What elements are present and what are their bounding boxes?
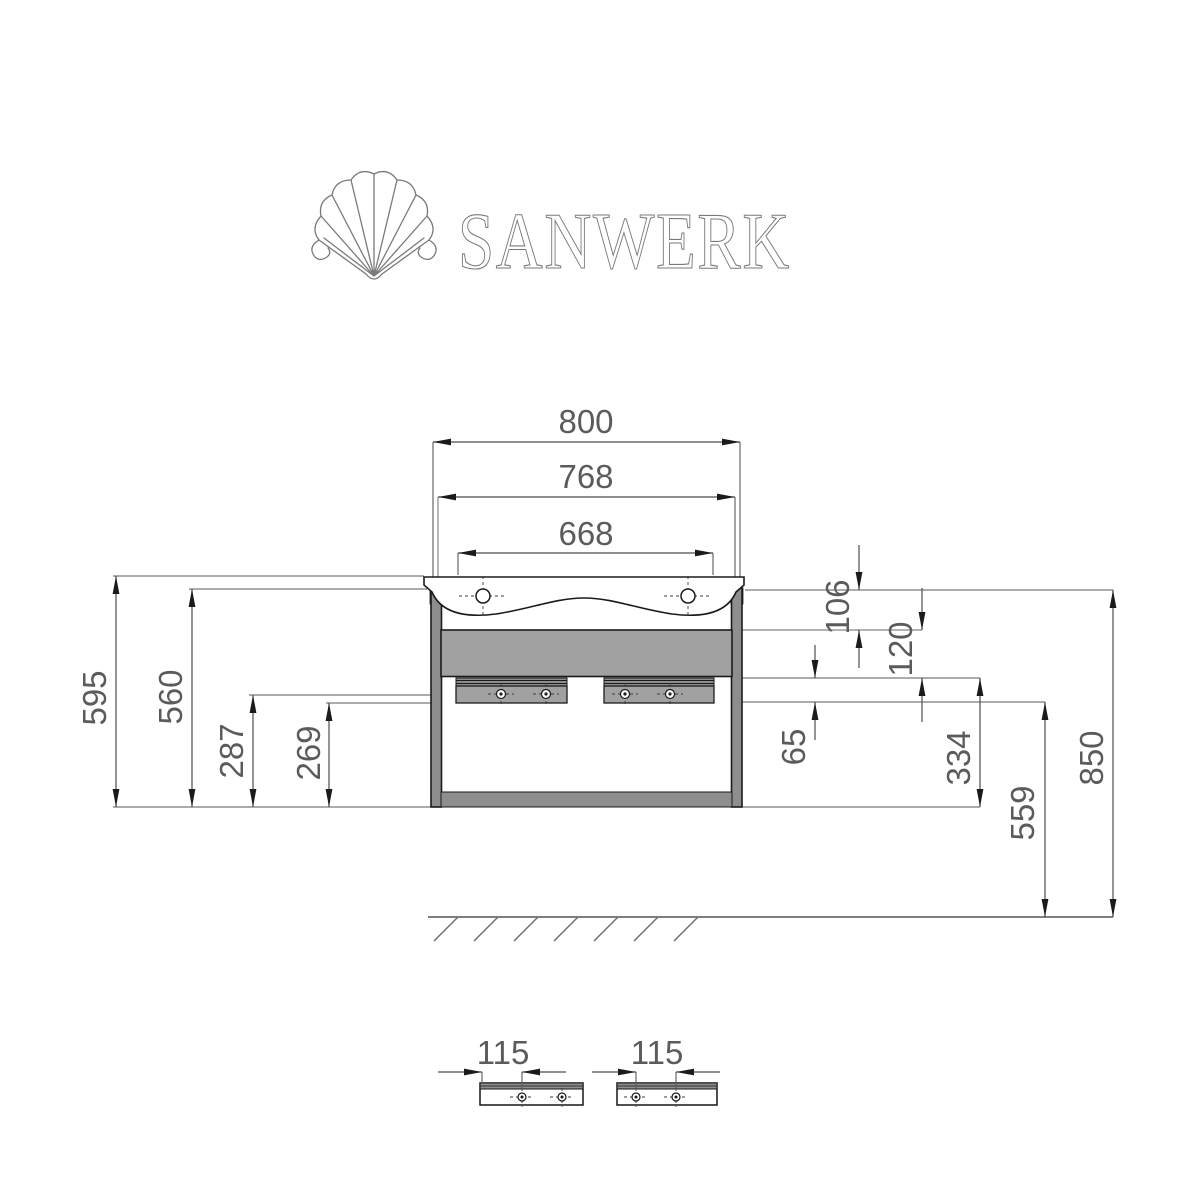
mounting-bracket-left (456, 678, 567, 705)
dimension-287: 287 (213, 695, 256, 807)
dimension-label: 668 (558, 515, 613, 552)
dimension-label: 106 (819, 579, 856, 634)
scallop-shell-icon (312, 172, 436, 279)
dimension-label: 115 (477, 1034, 530, 1071)
bracket-detail-left: 115 (438, 1034, 583, 1107)
side-panel-right (732, 588, 743, 807)
technical-drawing-page: SANWERK (0, 0, 1198, 1199)
basin (424, 576, 744, 618)
dimension-106: 106 (819, 545, 862, 668)
dimension-label: 595 (76, 670, 113, 725)
mounting-bracket-right (604, 678, 714, 705)
dimension-label: 120 (882, 621, 919, 676)
bracket-detail-right: 115 (592, 1034, 720, 1107)
dimension-269: 269 (290, 703, 332, 807)
ground-hatch (434, 917, 698, 941)
dimension-850: 850 (1073, 590, 1116, 917)
dimension-label: 800 (558, 403, 613, 440)
dimension-668: 668 (458, 515, 713, 556)
dimension-label: 65 (775, 729, 812, 766)
dimension-559: 559 (1004, 702, 1048, 917)
dimension-label: 850 (1073, 730, 1110, 785)
dimension-334: 334 (940, 678, 983, 807)
dimension-768: 768 (438, 458, 735, 500)
dimension-label: 559 (1004, 785, 1041, 840)
side-panel-left (431, 588, 442, 807)
dimension-label: 269 (290, 725, 327, 780)
plinth (441, 792, 732, 807)
dimension-65: 65 (775, 645, 818, 765)
dimension-label: 334 (940, 730, 977, 785)
dimension-label: 115 (631, 1034, 684, 1071)
dimension-label: 287 (213, 723, 250, 778)
dimension-label: 768 (558, 458, 613, 495)
dimension-560: 560 (152, 589, 195, 807)
dimension-800: 800 (433, 403, 740, 445)
ground-line (428, 917, 1113, 941)
vanity-technical-drawing: SANWERK (0, 0, 1198, 1199)
brand-name: SANWERK (458, 198, 791, 286)
dimension-label: 560 (152, 669, 189, 724)
drawer-front-panel (441, 630, 732, 677)
dimension-595: 595 (76, 576, 119, 807)
vanity-cabinet (430, 588, 743, 807)
